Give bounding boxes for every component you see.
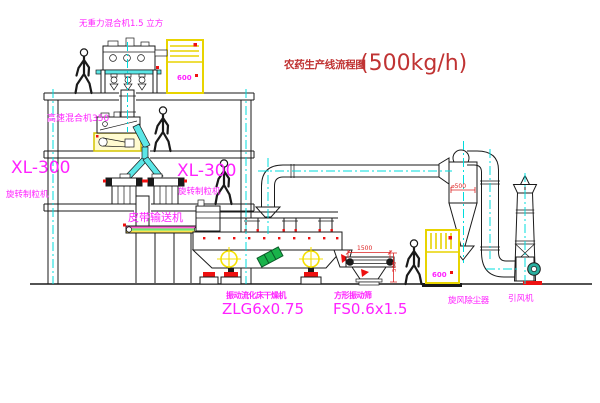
dryer-top-deck <box>220 212 338 218</box>
label-sieve-name: 方形振动筛 <box>334 290 372 300</box>
dryer-foot-inlet <box>200 272 218 284</box>
cabinet-upper-text: 600 <box>177 74 192 82</box>
label-dryer-name: 振动流化床干燥机 <box>226 290 286 300</box>
label-cyclone: 旋风除尘器 <box>448 295 490 306</box>
label-belt-conveyor: 皮带输送机 <box>128 210 183 224</box>
label-granulator-right-model: XL-300 <box>177 161 236 181</box>
person-figure <box>155 107 171 151</box>
diagram-canvas: 600 <box>0 0 600 403</box>
exhaust-duct <box>256 158 449 217</box>
mixer-discharge-manifold <box>96 70 161 74</box>
sieve-hopper <box>352 267 386 279</box>
gravity-free-mixer <box>96 38 167 93</box>
control-cabinet-upper: 600 <box>167 40 203 93</box>
dryer-foot-left <box>221 268 241 284</box>
cabinet-lower-text: 600 <box>432 271 447 279</box>
label-sieve-model: FS0.6x1.5 <box>333 300 407 318</box>
indicator-lamp <box>449 236 453 240</box>
label-granulator-left-model: XL-300 <box>11 158 70 178</box>
dryer-body <box>193 232 342 250</box>
process-flow-diagram: 600 <box>0 0 600 403</box>
conveyor-roller <box>126 227 131 232</box>
person-figure <box>76 49 92 93</box>
square-vibrating-sieve <box>346 250 397 285</box>
dryer-vibration-mounts <box>244 218 334 232</box>
dryer-foot-right <box>301 268 321 284</box>
dim-cyclone-diameter: ⌀500 <box>451 183 466 190</box>
person-figure <box>406 240 422 284</box>
induced-draft-fan <box>516 257 542 285</box>
label-granulator-left-name: 旋转制粒机 <box>6 189 49 200</box>
belt-conveyor <box>123 224 202 284</box>
indicator-lamp <box>194 43 198 47</box>
label-high-speed-mixer: 高速混合机350 <box>47 112 109 124</box>
label-gravity-free-mixer: 无重力混合机1.5 立方 <box>79 18 163 29</box>
label-dryer-model: ZLG6x0.75 <box>222 300 304 318</box>
fan-base <box>523 281 542 285</box>
label-fan: 引风机 <box>508 293 534 304</box>
mixer-outlet-pipe <box>155 50 167 56</box>
motor-pulley <box>99 138 107 146</box>
label-granulator-right-name: 旋转制粒机 <box>178 186 221 197</box>
conveyor-legs <box>136 233 191 283</box>
dim-sieve-height: 500 <box>392 261 398 272</box>
diagram-capacity: (500kg/h) <box>360 51 467 76</box>
control-cabinet-lower: 600 <box>422 230 462 287</box>
dim-sieve-length: 1500 <box>357 245 372 252</box>
dryer-inlet-box <box>196 206 220 231</box>
diagram-title: 农药生产线流程图 <box>283 58 366 71</box>
